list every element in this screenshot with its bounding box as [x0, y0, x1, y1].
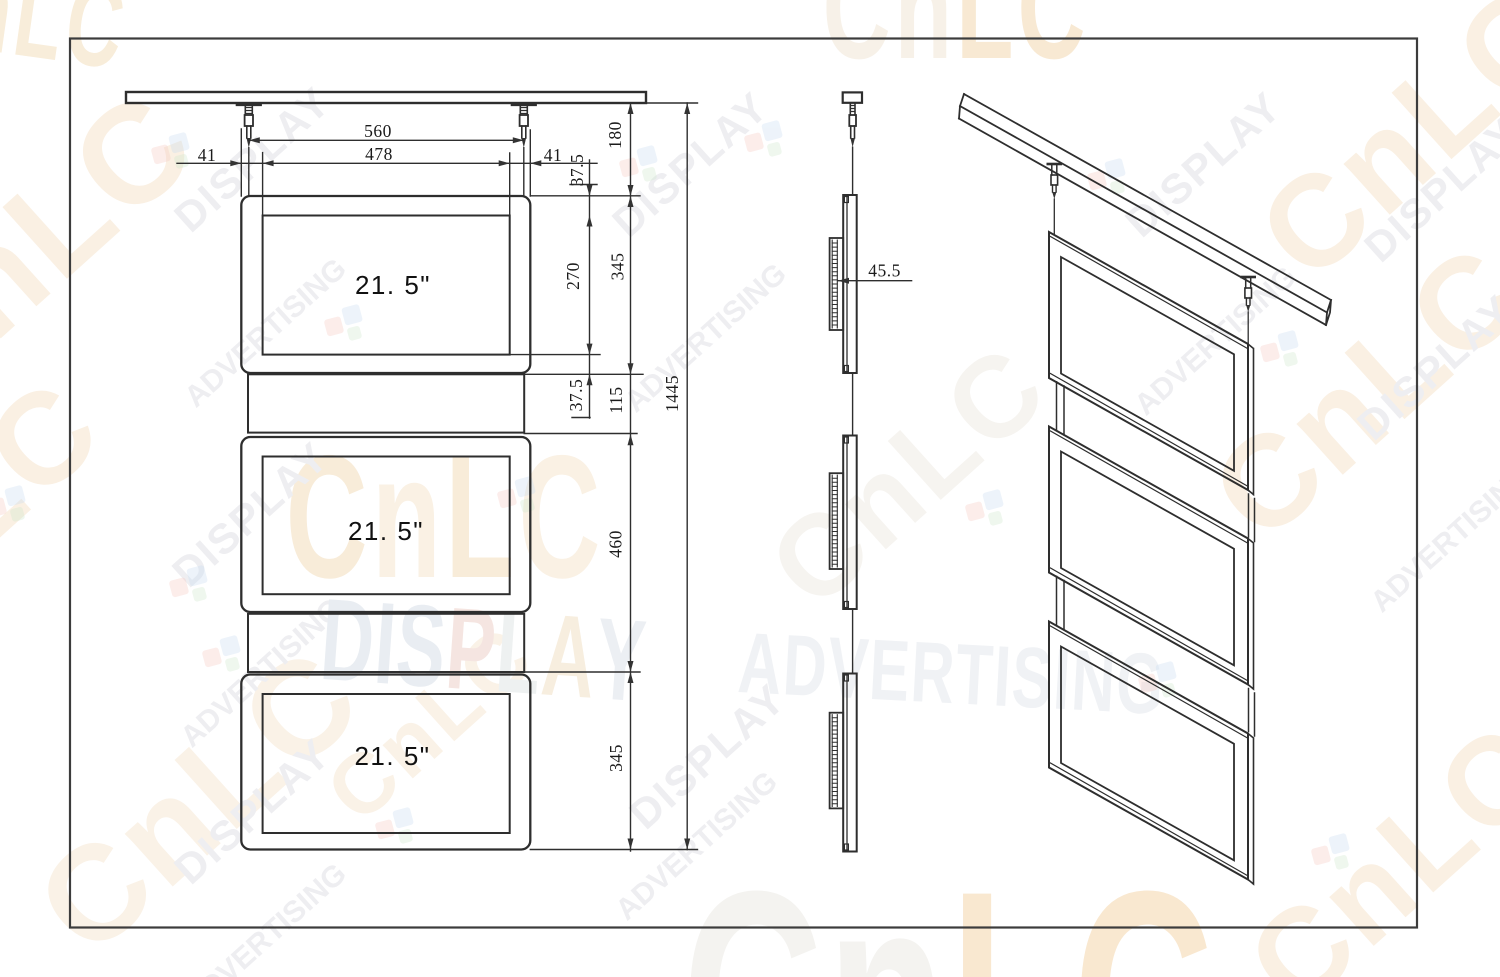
svg-text:CnLC: CnLC	[682, 828, 1217, 977]
svg-text:180: 180	[605, 121, 625, 149]
svg-text:345: 345	[608, 253, 628, 281]
svg-text:CnLC: CnLC	[746, 321, 1071, 632]
svg-text:45.5: 45.5	[868, 261, 901, 281]
svg-text:345: 345	[606, 744, 626, 772]
svg-text:41: 41	[544, 145, 563, 165]
svg-text:270: 270	[563, 262, 583, 290]
svg-text:CnLC: CnLC	[823, 0, 1090, 89]
svg-text:ADVERTISING: ADVERTISING	[736, 614, 1167, 732]
svg-text:1445: 1445	[662, 375, 682, 412]
svg-text:CnLC: CnLC	[1222, 698, 1500, 977]
svg-text:21. 5": 21. 5"	[355, 270, 431, 300]
svg-text:37.5: 37.5	[566, 379, 586, 412]
svg-text:DISPLAY: DISPLAY	[317, 574, 651, 727]
svg-text:21. 5": 21. 5"	[348, 516, 424, 546]
svg-text:ADVERTISING: ADVERTISING	[178, 252, 352, 414]
svg-text:ADVERTISING: ADVERTISING	[618, 257, 792, 419]
svg-text:41: 41	[198, 145, 217, 165]
svg-text:CnLC: CnLC	[0, 351, 128, 702]
svg-text:115: 115	[606, 386, 626, 413]
svg-text:21. 5": 21. 5"	[354, 741, 430, 771]
svg-text:37.5: 37.5	[567, 154, 587, 187]
svg-text:ADVERTISING: ADVERTISING	[1364, 457, 1500, 619]
svg-text:460: 460	[606, 530, 626, 558]
svg-text:478: 478	[365, 144, 393, 164]
svg-text:560: 560	[364, 121, 392, 141]
